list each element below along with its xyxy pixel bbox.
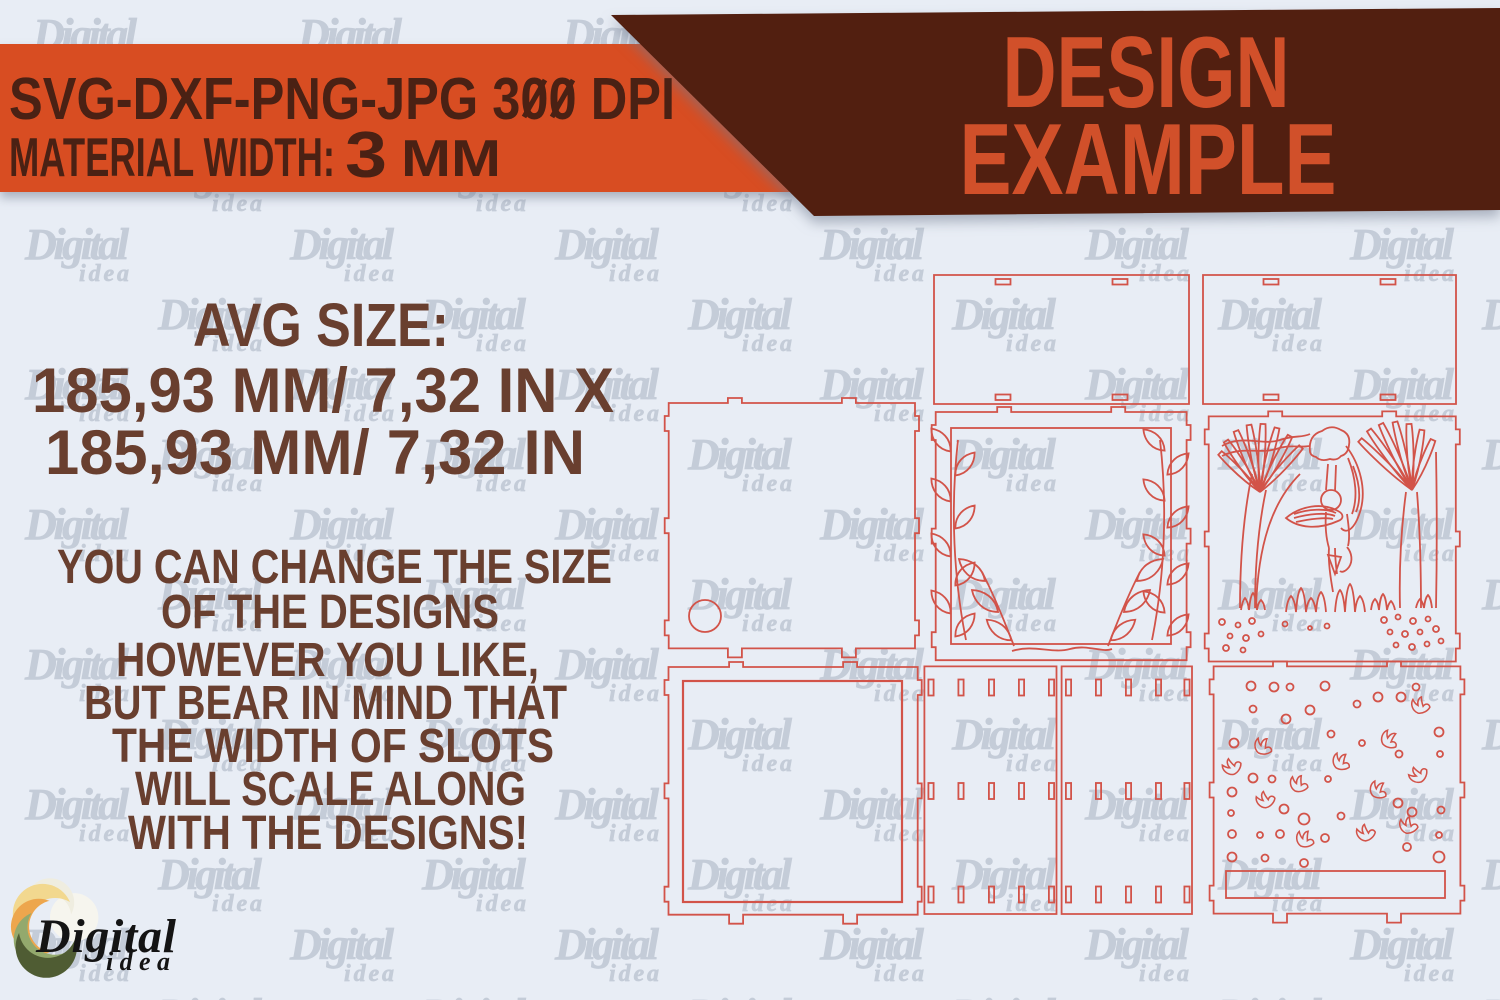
svg-text:Digital: Digital	[1481, 710, 1500, 759]
svg-text:OF THE DESIGNS: OF THE DESIGNS	[161, 586, 499, 639]
svg-text:MATERIAL WIDTH:: MATERIAL WIDTH:	[9, 126, 335, 188]
svg-text:Digital: Digital	[1481, 850, 1500, 899]
svg-text:AVG SIZE:: AVG SIZE:	[193, 291, 449, 359]
svg-text:SVG-DXF-PNG-JPG 300 DPI: SVG-DXF-PNG-JPG 300 DPI	[9, 66, 675, 132]
svg-text:185,93 MM/ 7,32 IN: 185,93 MM/ 7,32 IN	[45, 418, 585, 488]
svg-text:Digital: Digital	[687, 990, 793, 1000]
svg-text:Digital: Digital	[1481, 990, 1500, 1000]
svg-text:Digital: Digital	[1481, 430, 1500, 479]
svg-text:EXAMPLE: EXAMPLE	[960, 104, 1337, 216]
svg-text:Digital: Digital	[1217, 990, 1323, 1000]
svg-text:Digital: Digital	[1481, 290, 1500, 339]
svg-text:Digital: Digital	[1481, 570, 1500, 619]
svg-text:MM: MM	[401, 130, 501, 188]
svg-text:WITH THE DESIGNS!: WITH THE DESIGNS!	[128, 807, 528, 860]
svg-text:185,93 MM/ 7,32 IN X: 185,93 MM/ 7,32 IN X	[32, 356, 614, 426]
svg-text:3: 3	[345, 118, 387, 191]
svg-text:Digital: Digital	[421, 990, 527, 1000]
svg-text:Digital: Digital	[157, 990, 263, 1000]
svg-text:Digital: Digital	[951, 990, 1057, 1000]
